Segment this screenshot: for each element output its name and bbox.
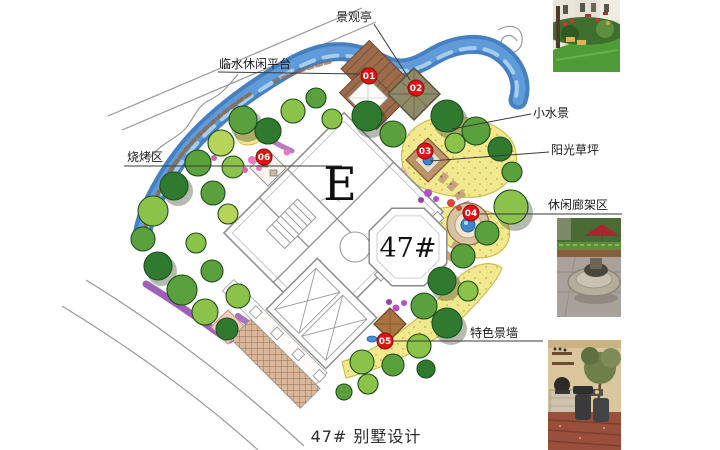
svg-text:临水休闲平台: 临水休闲平台: [219, 56, 291, 71]
site-plan-drawing: E 47#: [0, 0, 720, 450]
marker-06: 06: [256, 149, 272, 165]
photo-garden-lawn: [545, 0, 625, 72]
marker-05: 05: [377, 333, 393, 349]
callout-water-feature: 小水景: [452, 106, 569, 129]
marker-03: 03: [417, 143, 433, 159]
plan-title: 47# 别墅设计: [276, 423, 456, 447]
svg-text:03: 03: [419, 147, 432, 157]
svg-text:01: 01: [363, 72, 376, 82]
svg-text:烧烤区: 烧烤区: [127, 149, 163, 164]
svg-text:休闲廊架区: 休闲廊架区: [548, 197, 608, 212]
building-unit-label: 47#: [380, 233, 437, 264]
svg-text:阳光草坪: 阳光草坪: [551, 143, 599, 157]
building-block-label: E: [323, 157, 357, 211]
svg-text:小水景: 小水景: [533, 106, 569, 120]
marker-01: 01: [361, 68, 377, 84]
svg-text:04: 04: [465, 209, 478, 219]
svg-text:06: 06: [258, 153, 271, 163]
landscape-plan-page: E 47#: [0, 0, 720, 450]
svg-text:特色景墙: 特色景墙: [470, 325, 518, 340]
svg-text:02: 02: [410, 84, 423, 94]
marker-04: 04: [463, 205, 479, 221]
svg-text:景观亭: 景观亭: [336, 9, 372, 24]
photo-patio-bbq: [548, 340, 621, 450]
svg-text:05: 05: [379, 337, 392, 347]
marker-02: 02: [408, 80, 424, 96]
photo-courtyard-fountain: [557, 218, 621, 317]
